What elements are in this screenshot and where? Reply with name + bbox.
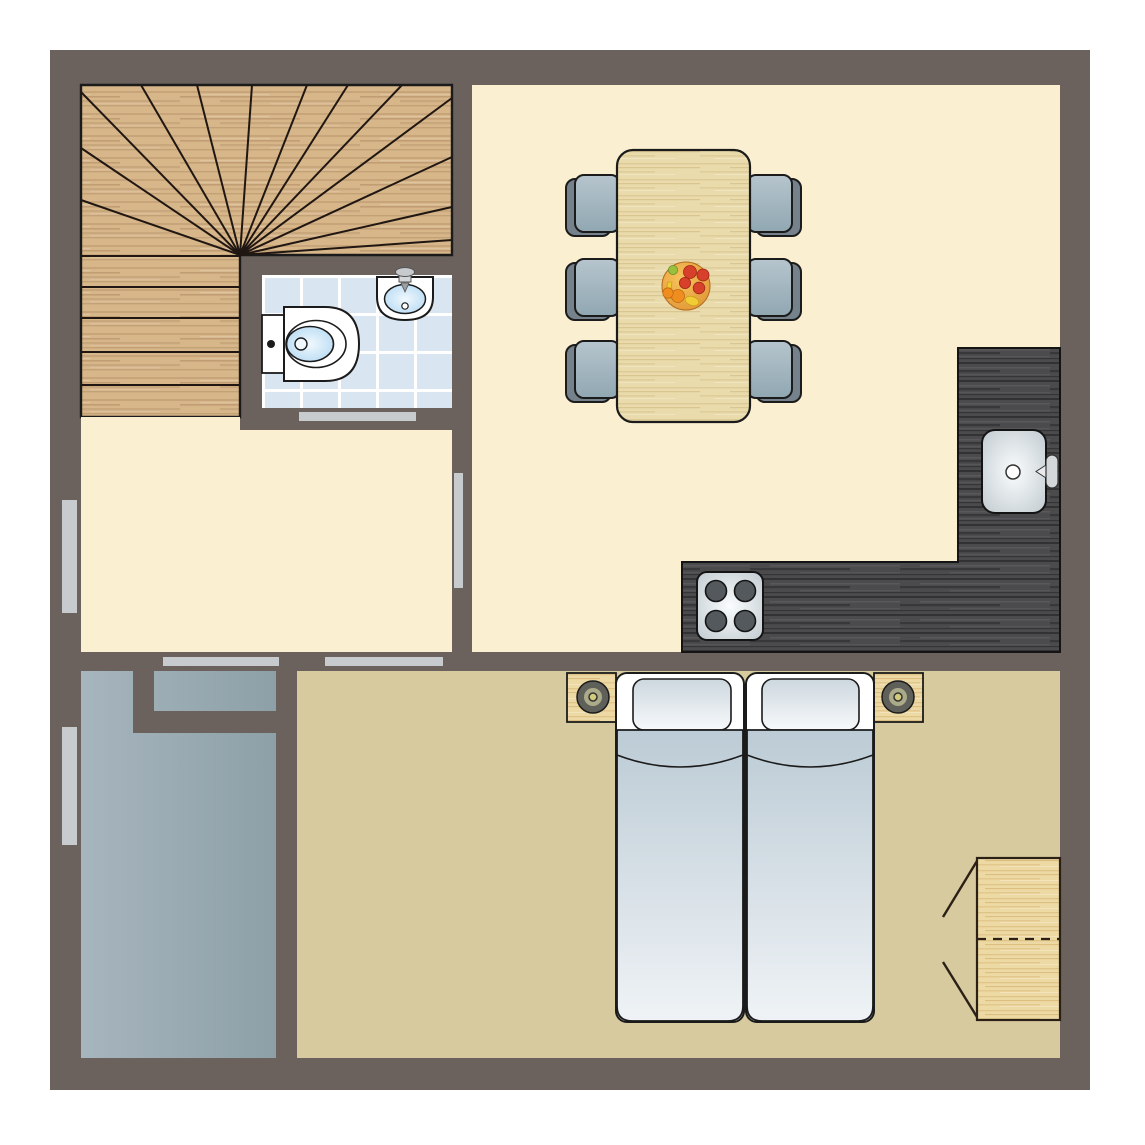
lamp-right-icon bbox=[882, 681, 914, 713]
dining-chair bbox=[575, 259, 620, 316]
floor-plan-page bbox=[0, 0, 1145, 1145]
burner bbox=[735, 611, 756, 632]
dining-chair bbox=[747, 341, 792, 398]
pillow bbox=[762, 679, 859, 730]
terrace-main bbox=[81, 733, 276, 1058]
dining-chair bbox=[575, 175, 620, 232]
floor-plan bbox=[0, 0, 1145, 1145]
duvet bbox=[747, 730, 873, 1021]
window-left-wall-upper bbox=[62, 500, 77, 613]
door-opening-hall-bedroom bbox=[325, 657, 443, 666]
bed-right bbox=[746, 673, 874, 1022]
dining-chair bbox=[747, 175, 792, 232]
dining-chair bbox=[747, 259, 792, 316]
dining-chair bbox=[575, 341, 620, 398]
burner bbox=[706, 581, 727, 602]
fruit-bowl-icon bbox=[662, 262, 710, 310]
kitchen-sink-icon bbox=[982, 430, 1058, 513]
bed-left bbox=[616, 673, 744, 1022]
duvet bbox=[617, 730, 743, 1021]
burner bbox=[735, 581, 756, 602]
door-opening-bathroom bbox=[299, 412, 416, 421]
door-opening-hall-terrace bbox=[163, 657, 279, 666]
burner bbox=[706, 611, 727, 632]
stove-icon bbox=[697, 572, 763, 640]
pillow bbox=[633, 679, 731, 730]
toilet-icon bbox=[262, 307, 359, 381]
dining-set bbox=[566, 150, 801, 422]
lamp-left-icon bbox=[577, 681, 609, 713]
door-opening-hall-living bbox=[454, 473, 463, 588]
terrace-recess bbox=[154, 671, 276, 711]
window-left-wall-lower bbox=[62, 727, 77, 845]
hallway-floor bbox=[81, 417, 452, 652]
faucet-icon bbox=[1046, 455, 1058, 488]
